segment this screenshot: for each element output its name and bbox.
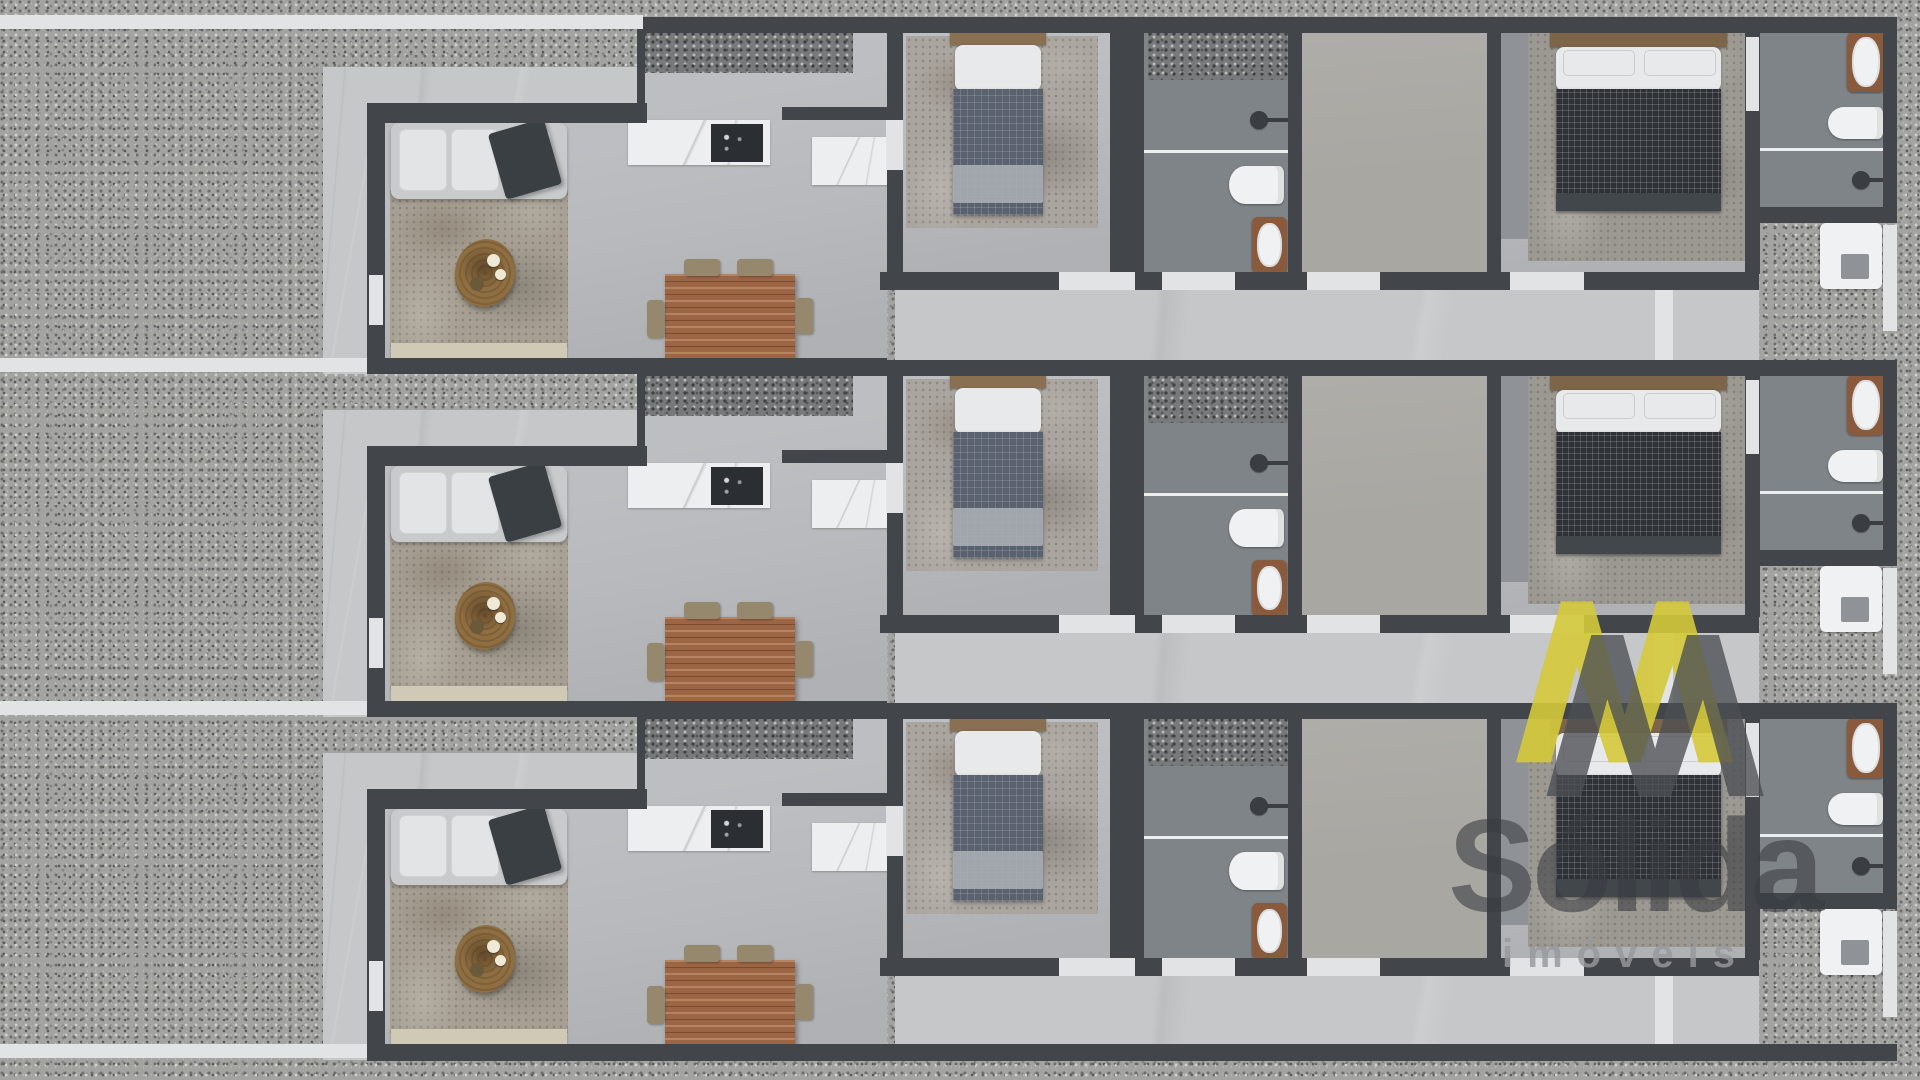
terrace-step [1655,976,1673,1046]
front-walkway [323,753,643,789]
bedroom1-bathroom1-wall [1110,717,1144,960]
bed1-foot-blanket [953,165,1043,203]
dining-chair [684,602,720,619]
dining-chair [684,259,720,276]
right-path [1883,225,1897,331]
dining-chair [796,641,813,677]
front-path [0,701,367,715]
front-path [0,358,367,372]
living-top-wall [367,789,647,809]
kitchen-garden-pebbles [643,718,853,759]
back-terrace [895,290,1759,360]
living-left-wall [367,789,385,1060]
shower1-head [1250,797,1268,815]
bed1-pillow [955,731,1041,777]
coffee-table-plate [487,254,500,267]
back-terrace [895,633,1759,703]
bedroom1-bathroom1-wall [1110,374,1144,617]
bed1-pillow [955,388,1041,434]
bathroom2-bottom-wall [1745,550,1897,566]
bathroom1-pebbles [1148,32,1288,80]
sofa-cushion [399,129,447,191]
bed1-foot-blanket [953,851,1043,889]
shower2-head [1852,857,1870,875]
bed2-footboard [1556,193,1721,211]
shower2-glass [1758,834,1885,837]
bathroom2-bottom-wall [1745,207,1897,223]
dining-chair [684,945,720,962]
living-window [369,961,383,1011]
shower1-head [1250,111,1268,129]
back-terrace [895,976,1759,1046]
bedroom2-closet [1499,376,1529,582]
bed2-footboard [1556,879,1721,897]
sink1-bowl [1257,909,1282,953]
cooktop [711,124,763,162]
door-threshold [1059,272,1135,290]
bathroom1-corridor-wall [1288,31,1302,274]
dining-chair [647,300,664,338]
east-wall [1883,31,1897,223]
shower1-arm [1266,461,1288,465]
bed2-headboard [1550,33,1727,47]
coffee-table-plate [495,269,506,280]
bedroom2-door [1746,380,1759,454]
door-threshold [1307,272,1380,290]
living-window [369,618,383,668]
shower2-glass [1758,148,1885,151]
bed2-pillow [1563,50,1635,76]
toilet1 [1229,166,1284,204]
window-bench [391,343,567,358]
shower1-arm [1266,804,1288,808]
east-wall [1883,717,1897,909]
toilet1 [1229,852,1284,890]
kitchen-garden-pebbles [643,375,853,416]
cooktop [711,810,763,848]
bed2-duvet [1556,775,1721,881]
east-wall [1883,374,1897,566]
corridor-floor [1300,374,1489,617]
dining-table [665,274,795,360]
utility-pad-basin [1841,940,1869,965]
bedroom2-door [1746,723,1759,797]
shower1-head [1250,454,1268,472]
corridor-floor [1300,31,1489,274]
side-walkway [323,410,367,717]
sink-counter [812,137,890,185]
side-walkway [323,753,367,1060]
shower1-arm [1266,118,1288,122]
kitchen-wall-segment [782,793,893,806]
bed1-headboard [950,374,1046,388]
bed2-headboard [1550,719,1727,733]
sink-counter [812,480,890,528]
shower1-glass [1144,493,1288,496]
boundary-wall [367,1044,1897,1061]
bed2-pillow [1563,393,1635,419]
terrace-step [1655,290,1673,360]
corridor-bedroom2-wall [1487,374,1501,617]
shower1-glass [1144,150,1288,153]
sofa-cushion [399,472,447,534]
bathroom1-pebbles [1148,718,1288,766]
bed2-headboard [1550,376,1727,390]
front-path [0,15,367,29]
kitchen-wall-segment [782,107,893,120]
bedroom2-closet [1499,719,1529,925]
bed2-pillow [1644,50,1716,76]
door-threshold [1307,958,1380,976]
bathtub [1852,37,1880,87]
toilet2 [1828,107,1883,139]
coffee-table-plate [487,940,500,953]
sink1-bowl [1257,566,1282,610]
coffee-table-plate [495,612,506,623]
living-left-wall [367,446,385,717]
bed2-duvet [1556,432,1721,538]
coffee-table-plate [487,597,500,610]
door-threshold [1059,958,1135,976]
cooktop [711,467,763,505]
kitchen-wall-segment [782,450,893,463]
bathroom1-pebbles [1148,375,1288,423]
door-threshold [1162,958,1235,976]
shower2-head [1852,171,1870,189]
dining-chair [737,259,773,276]
bedroom2-door [1746,37,1759,111]
north-wall [637,703,1897,719]
sink-counter [812,823,890,871]
bed2-pillow [1644,736,1716,762]
door-threshold [1510,615,1584,633]
right-path [1883,568,1897,674]
kitchen-door [886,463,903,513]
north-wall [637,360,1897,376]
dining-table [665,960,795,1046]
living-window [369,275,383,325]
window-bench [391,1029,567,1044]
top-path [367,15,643,29]
door-threshold [1510,958,1584,976]
bed2-duvet [1556,89,1721,195]
kitchen-garden-pebbles [643,32,853,73]
bathtub [1852,723,1880,773]
coffee-table-bowl [470,620,484,634]
sink1-bowl [1257,223,1282,267]
corridor-bedroom2-wall [1487,31,1501,274]
kitchen-door [886,120,903,170]
toilet2 [1828,450,1883,482]
coffee-table-plate [495,955,506,966]
dining-chair [796,984,813,1020]
side-walkway [323,67,367,374]
bed1-pillow [955,45,1041,91]
bed2-pillow [1563,736,1635,762]
door-threshold [1307,615,1380,633]
bed1-foot-blanket [953,508,1043,546]
door-threshold [1162,615,1235,633]
bottom-path [0,1044,367,1058]
door-threshold [1162,272,1235,290]
bathroom1-corridor-wall [1288,374,1302,617]
bathroom2-bottom-wall [1745,893,1897,909]
shower2-glass [1758,491,1885,494]
corridor-bedroom2-wall [1487,717,1501,960]
coffee-table-bowl [470,963,484,977]
utility-pad-basin [1841,254,1869,279]
window-bench [391,686,567,701]
bathroom1-corridor-wall [1288,717,1302,960]
toilet1 [1229,509,1284,547]
utility-pad-basin [1841,597,1869,622]
living-top-wall [367,103,647,123]
right-path [1883,911,1897,1017]
door-threshold [1059,615,1135,633]
dining-chair [647,986,664,1024]
dining-chair [737,602,773,619]
shower2-head [1852,514,1870,532]
dining-chair [796,298,813,334]
shower1-glass [1144,836,1288,839]
front-walkway [323,410,643,446]
bedroom1-bathroom1-wall [1110,31,1144,274]
bed2-footboard [1556,536,1721,554]
terrace-step [1655,633,1673,703]
dining-chair [647,643,664,681]
door-threshold [1510,272,1584,290]
bed1-headboard [950,31,1046,45]
bed2-pillow [1644,393,1716,419]
sofa-cushion [399,815,447,877]
coffee-table-bowl [470,277,484,291]
north-wall [637,17,1897,33]
corridor-floor [1300,717,1489,960]
living-top-wall [367,446,647,466]
living-left-wall [367,103,385,374]
toilet2 [1828,793,1883,825]
dining-table [665,617,795,703]
dining-chair [737,945,773,962]
bed1-headboard [950,717,1046,731]
bedroom2-closet [1499,33,1529,239]
kitchen-door [886,806,903,856]
bathtub [1852,380,1880,430]
front-walkway [323,67,643,103]
floorplan-render: Sólida imóveis [0,0,1920,1080]
